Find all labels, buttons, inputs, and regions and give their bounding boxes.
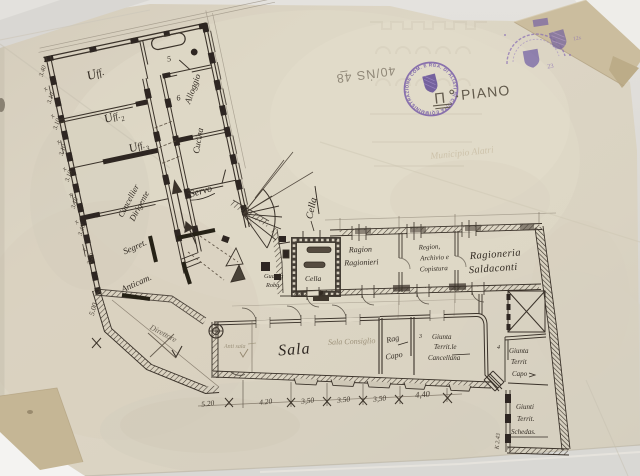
- svg-text:Territ.: Territ.: [517, 415, 535, 423]
- svg-text:4,40: 4,40: [415, 388, 432, 400]
- svg-text:5.20: 5.20: [201, 398, 215, 409]
- svg-text:3,50: 3,50: [372, 393, 387, 403]
- svg-text:3,50: 3,50: [300, 395, 315, 405]
- svg-text:Territ.le: Territ.le: [434, 343, 457, 351]
- svg-text:Guarda: Guarda: [264, 273, 283, 280]
- svg-text:Ragion: Ragion: [348, 245, 372, 255]
- svg-text:Schedas.: Schedas.: [511, 428, 536, 436]
- svg-text:Territ: Territ: [511, 358, 528, 366]
- svg-text:Copistura: Copistura: [420, 264, 449, 273]
- svg-text:Sala Consiglio: Sala Consiglio: [328, 336, 376, 347]
- svg-text:Giunti: Giunti: [516, 403, 534, 411]
- svg-text:Cancellana: Cancellana: [428, 354, 461, 362]
- svg-text:Sala: Sala: [278, 340, 312, 359]
- svg-text:4: 4: [497, 344, 500, 351]
- svg-text:3: 3: [418, 334, 422, 340]
- svg-text:Capo: Capo: [512, 370, 528, 378]
- svg-text:Roba: Roba: [265, 282, 279, 289]
- svg-text:4.20: 4.20: [259, 396, 273, 406]
- svg-text:Archivio e: Archivio e: [419, 253, 449, 263]
- svg-text:23: 23: [547, 63, 554, 71]
- svg-text:Ragionieri: Ragionieri: [343, 257, 379, 267]
- svg-text:Giunta: Giunta: [432, 333, 452, 341]
- svg-text:K 2.43: K 2.43: [494, 433, 502, 451]
- svg-text:Giunta: Giunta: [509, 347, 529, 355]
- svg-text:Cella: Cella: [305, 274, 321, 283]
- svg-text:3.50: 3.50: [336, 394, 351, 404]
- svg-text:Region,: Region,: [417, 242, 440, 251]
- svg-text:Anti sala: Anti sala: [223, 344, 246, 350]
